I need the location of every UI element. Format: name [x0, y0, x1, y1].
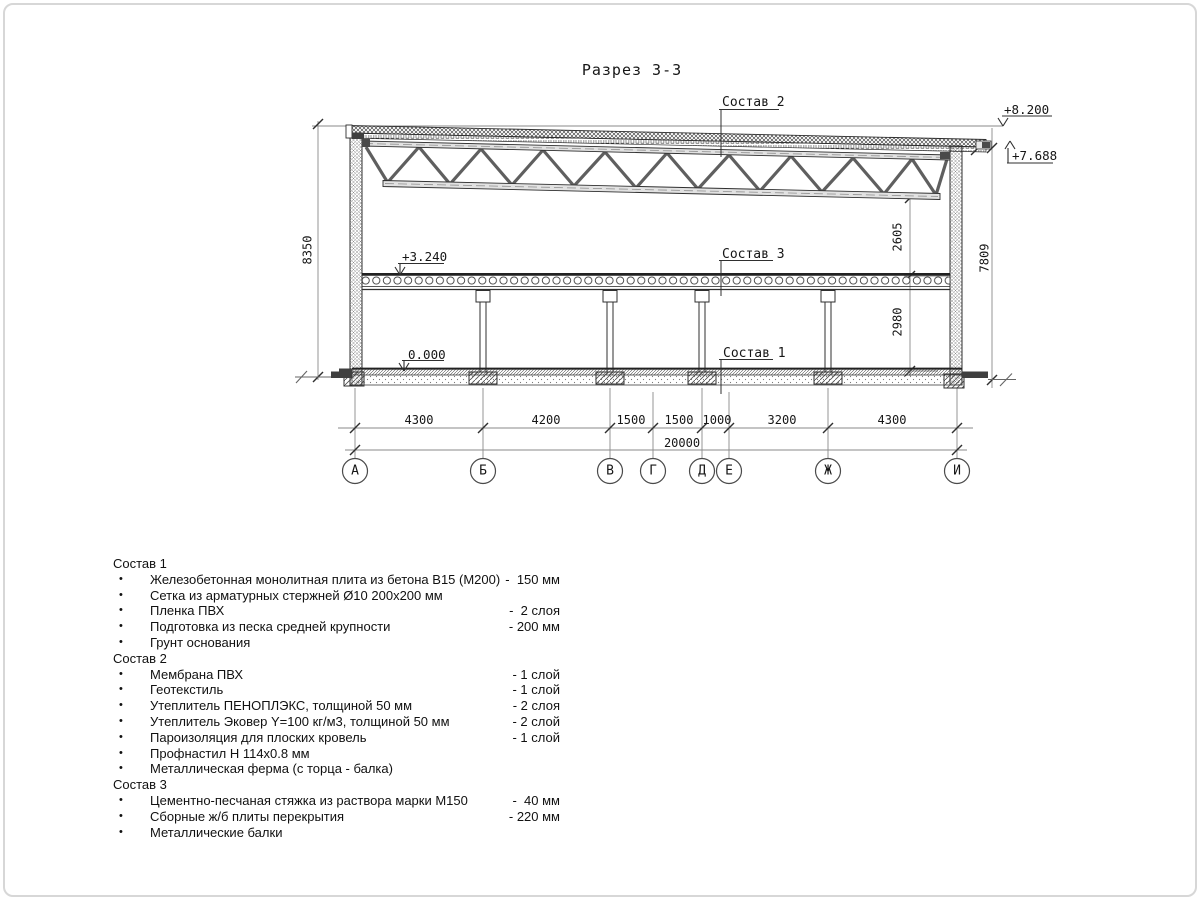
- legend-item: • Профнастил Н 114х0.8 мм: [113, 746, 560, 762]
- dim-span-d-e: 1000: [703, 414, 732, 427]
- floor-slab: [362, 274, 950, 290]
- legend-item: • Металлическая ферма (с торца - балка): [113, 761, 560, 777]
- bullet-icon: •: [113, 793, 150, 809]
- legend-item-label: Пароизоляция для плоских кровель: [150, 730, 560, 746]
- axis-label-i: И: [953, 465, 961, 478]
- axis-label-v: В: [606, 465, 614, 478]
- legend-item: • Геотекстиль - 1 слой: [113, 682, 560, 698]
- dim-total: 20000: [664, 437, 700, 450]
- legend-item-label: Профнастил Н 114х0.8 мм: [150, 746, 560, 762]
- dim-vertical-left: 8350: [302, 236, 315, 265]
- legend-item-value: - 2 слоя: [509, 603, 560, 619]
- legend-item: • Утеплитель ПЕНОПЛЭКС, толщиной 50 мм -…: [113, 698, 560, 714]
- legend-section-title: Состав 2: [113, 651, 560, 667]
- dim-vertical-right: 7809: [979, 244, 992, 273]
- legend-item: • Грунт основания: [113, 635, 560, 651]
- bullet-icon: •: [113, 698, 150, 714]
- dim-span-a-b: 4300: [405, 414, 434, 427]
- dimension-ticks: [313, 119, 997, 455]
- legend-item-value: - 1 слой: [512, 667, 560, 683]
- bullet-icon: •: [113, 572, 150, 588]
- label-sostav-2: Состав 2: [722, 96, 785, 109]
- legend-item: • Сборные ж/б плиты перекрытия - 220 мм: [113, 809, 560, 825]
- legend-item-label: Сборные ж/б плиты перекрытия: [150, 809, 560, 825]
- legend-item-label: Металлические балки: [150, 825, 560, 841]
- legend-item: • Цементно-песчаная стяжка из раствора м…: [113, 793, 560, 809]
- bullet-icon: •: [113, 714, 150, 730]
- bullet-icon: •: [113, 682, 150, 698]
- legend-item: • Сетка из арматурных стержней Ø10 200х2…: [113, 588, 560, 604]
- axis-label-b: Б: [479, 465, 487, 478]
- legend-item: • Подготовка из песка средней крупности …: [113, 619, 560, 635]
- legend-item-label: Грунт основания: [150, 635, 560, 651]
- legend-item: • Пленка ПВХ - 2 слоя: [113, 603, 560, 619]
- legend-item-label: Железобетонная монолитная плита из бетон…: [150, 572, 560, 588]
- legend-item-label: Утеплитель Эковер Y=100 кг/м3, толщиной …: [150, 714, 560, 730]
- axis-label-d: Д: [698, 465, 706, 478]
- elevation-ground: 0.000: [408, 348, 446, 361]
- legend-item-value: - 1 слой: [512, 682, 560, 698]
- legend-item-label: Пленка ПВХ: [150, 603, 560, 619]
- legend-item-label: Подготовка из песка средней крупности: [150, 619, 560, 635]
- bullet-icon: •: [113, 825, 150, 841]
- legend-item-label: Металлическая ферма (с торца - балка): [150, 761, 560, 777]
- legend-item-label: Геотекстиль: [150, 682, 560, 698]
- legend-section-title: Состав 1: [113, 556, 560, 572]
- dim-span-g-d: 1500: [665, 414, 694, 427]
- legend-item-value: - 150 мм: [505, 572, 560, 588]
- legend-item-label: Сетка из арматурных стержней Ø10 200х200…: [150, 588, 560, 604]
- drawing-title: Разрез 3-3: [582, 64, 682, 77]
- legend-item-value: - 40 мм: [513, 793, 561, 809]
- legend-item: • Утеплитель Эковер Y=100 кг/м3, толщино…: [113, 714, 560, 730]
- dim-floor-clear: 2980: [892, 308, 905, 337]
- legend-item: • Пароизоляция для плоских кровель - 1 с…: [113, 730, 560, 746]
- dim-span-b-v: 4200: [532, 414, 561, 427]
- bullet-icon: •: [113, 667, 150, 683]
- bullet-icon: •: [113, 588, 150, 604]
- bullet-icon: •: [113, 619, 150, 635]
- bullet-icon: •: [113, 730, 150, 746]
- legend-item: • Мембрана ПВХ - 1 слой: [113, 667, 560, 683]
- elevation-roof-low: +7.688: [1012, 149, 1057, 162]
- axis-label-zh: Ж: [824, 465, 832, 478]
- ground-slab: [295, 369, 1016, 387]
- label-sostav-3: Состав 3: [722, 248, 785, 261]
- label-sostav-1: Состав 1: [723, 347, 786, 360]
- legend-item: • Железобетонная монолитная плита из бет…: [113, 572, 560, 588]
- legend-item-value: - 1 слой: [512, 730, 560, 746]
- legend-item-value: - 2 слой: [512, 714, 560, 730]
- legend-item-label: Утеплитель ПЕНОПЛЭКС, толщиной 50 мм: [150, 698, 560, 714]
- dim-span-e-zh: 3200: [768, 414, 797, 427]
- drawing-sheet: Разрез 3-3 Состав 2 Состав 3 Состав 1 +8…: [0, 0, 1200, 900]
- legend-item-label: Мембрана ПВХ: [150, 667, 560, 683]
- legend-section-title: Состав 3: [113, 777, 560, 793]
- legend: Состав 1 • Железобетонная монолитная пли…: [113, 556, 560, 840]
- axis-label-e: Е: [725, 465, 733, 478]
- dim-span-v-g: 1500: [617, 414, 646, 427]
- legend-item-label: Цементно-песчаная стяжка из раствора мар…: [150, 793, 560, 809]
- elevation-floor: +3.240: [402, 250, 447, 263]
- legend-item-value: - 200 мм: [509, 619, 560, 635]
- bullet-icon: •: [113, 635, 150, 651]
- axis-label-a: А: [351, 465, 359, 478]
- elevation-roof-high: +8.200: [1004, 103, 1049, 116]
- bullet-icon: •: [113, 809, 150, 825]
- bullet-icon: •: [113, 603, 150, 619]
- legend-item-value: - 2 слоя: [513, 698, 560, 714]
- axis-label-g: Г: [649, 465, 657, 478]
- dim-truss-clear: 2605: [892, 223, 905, 252]
- bullet-icon: •: [113, 746, 150, 762]
- legend-item: • Металлические балки: [113, 825, 560, 841]
- bullet-icon: •: [113, 761, 150, 777]
- legend-item-value: - 220 мм: [509, 809, 560, 825]
- dim-span-zh-i: 4300: [878, 414, 907, 427]
